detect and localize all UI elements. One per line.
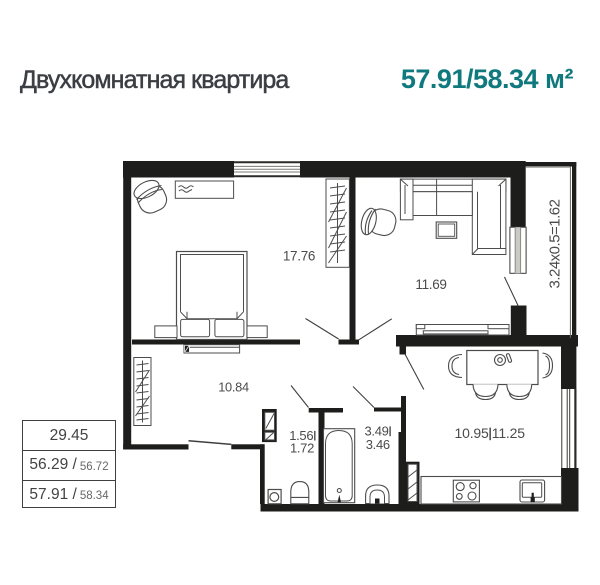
svg-text:11.69: 11.69 (415, 277, 446, 292)
svg-text:17.76: 17.76 (283, 249, 315, 264)
svg-text:10.84: 10.84 (218, 380, 249, 395)
svg-text:1.72: 1.72 (290, 441, 314, 456)
svg-text:3.46: 3.46 (366, 437, 390, 452)
svg-text:10.95: 10.95 (455, 425, 489, 441)
svg-text:3.24x0.5=1.62: 3.24x0.5=1.62 (546, 199, 563, 288)
svg-text:11.25: 11.25 (492, 425, 525, 441)
